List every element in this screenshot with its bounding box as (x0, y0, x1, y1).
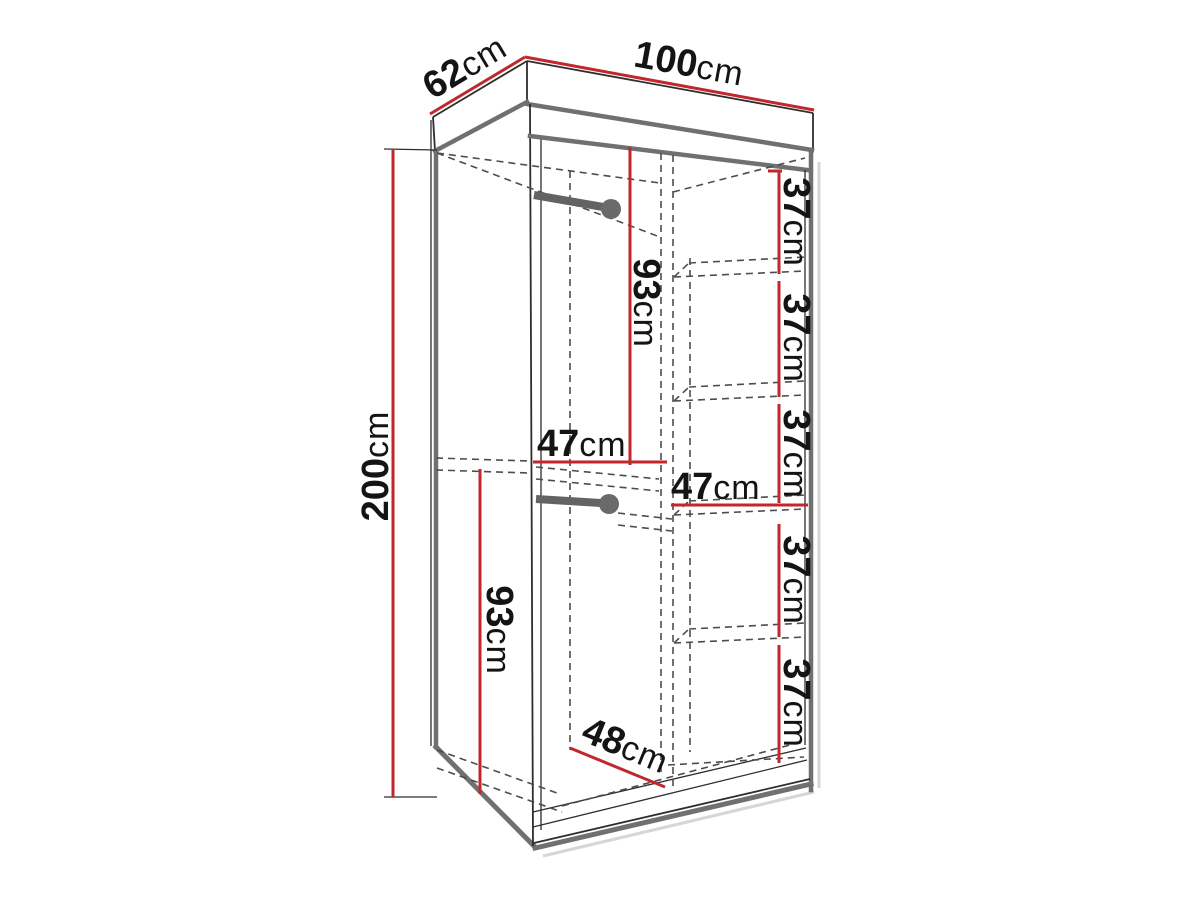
dim-label-upper-width: 47cm (537, 423, 627, 465)
ceiling-hidden-lines (437, 153, 805, 237)
svg-text:47cm: 47cm (671, 466, 761, 508)
svg-text:62cm: 62cm (416, 26, 514, 108)
dim-label-shelf-gap-4: 37cm (775, 535, 817, 625)
rod-end-knob (601, 199, 621, 219)
dim-label-height: 200cm (355, 411, 397, 522)
middle-shelf-hidden-lines (436, 458, 672, 531)
svg-text:37cm: 37cm (775, 535, 817, 625)
hanging-rod-lower (536, 494, 619, 514)
dim-label-shelf-gap-1: 37cm (775, 177, 817, 267)
svg-text:37cm: 37cm (775, 293, 817, 383)
svg-text:93cm: 93cm (625, 258, 667, 348)
dim-label-shelf-gap-5: 37cm (775, 658, 817, 748)
hanging-rod-upper (534, 195, 621, 219)
dim-label-shelf-width: 47cm (671, 466, 761, 508)
dim-label-upper-hanging: 93cm (625, 258, 667, 348)
svg-text:37cm: 37cm (775, 177, 817, 267)
dim-label-shelf-gap-2: 37cm (775, 293, 817, 383)
svg-text:93cm: 93cm (478, 585, 520, 675)
svg-text:200cm: 200cm (355, 411, 397, 522)
svg-text:37cm: 37cm (775, 409, 817, 499)
dim-label-depth: 62cm (416, 26, 514, 108)
dim-label-lower-hanging: 93cm (478, 585, 520, 675)
wardrobe-dimension-diagram: 62cm 100cm 200cm 93cm 47cm 93cm 48cm 47c… (0, 0, 1200, 900)
svg-text:37cm: 37cm (775, 658, 817, 748)
dim-label-shelf-gap-3: 37cm (775, 409, 817, 499)
diagram-canvas: 62cm 100cm 200cm 93cm 47cm 93cm 48cm 47c… (0, 0, 1200, 900)
svg-text:47cm: 47cm (537, 423, 627, 465)
rod-end-knob (599, 494, 619, 514)
